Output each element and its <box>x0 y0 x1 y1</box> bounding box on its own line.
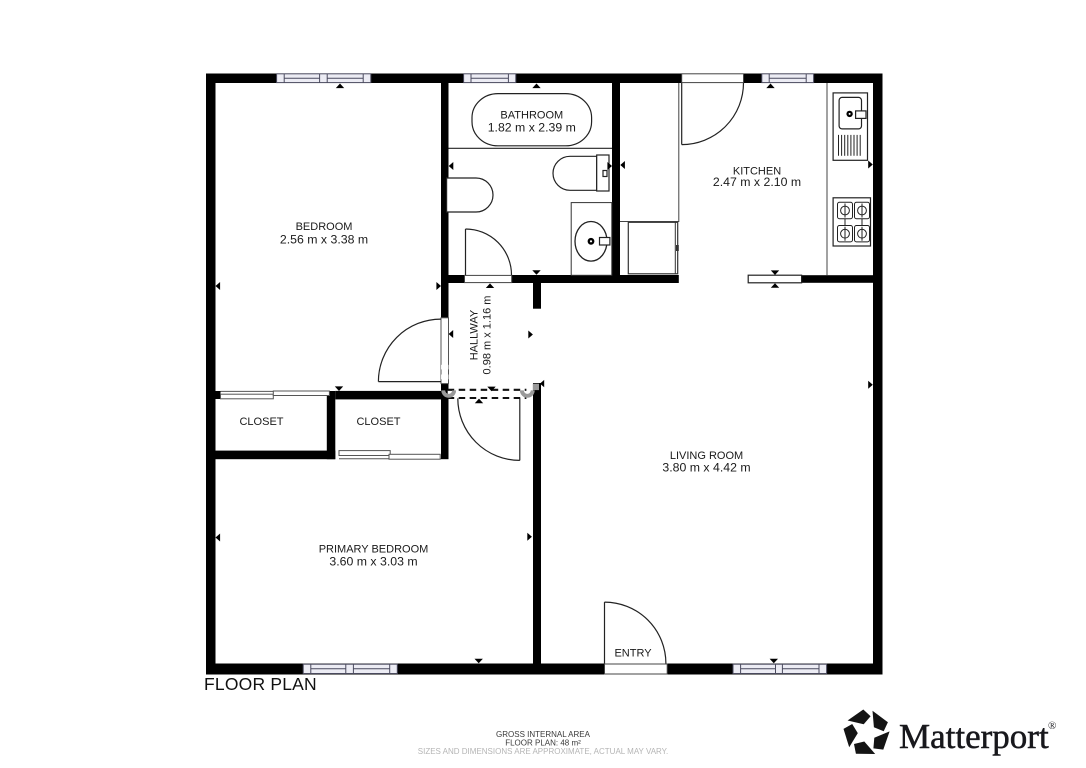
svg-text:BEDROOM: BEDROOM <box>296 221 353 233</box>
svg-text:HALLWAY: HALLWAY <box>469 309 481 360</box>
svg-text:FLOOR PLAN: FLOOR PLAN <box>204 674 317 694</box>
svg-text:2.47 m x 2.10 m: 2.47 m x 2.10 m <box>713 175 801 189</box>
svg-text:3.60 m x 3.03 m: 3.60 m x 3.03 m <box>329 555 417 569</box>
svg-text:CLOSET: CLOSET <box>356 416 400 428</box>
svg-text:CLOSET: CLOSET <box>239 416 283 428</box>
svg-text:®: ® <box>1048 720 1056 732</box>
svg-text:SIZES AND DIMENSIONS ARE APPRO: SIZES AND DIMENSIONS ARE APPROXIMATE, AC… <box>418 747 668 756</box>
svg-text:1.82 m x 2.39 m: 1.82 m x 2.39 m <box>488 121 576 135</box>
svg-text:0.98 m x 1.16 m: 0.98 m x 1.16 m <box>482 296 494 375</box>
svg-text:2.56 m x 3.38 m: 2.56 m x 3.38 m <box>280 233 368 247</box>
svg-text:BATHROOM: BATHROOM <box>500 109 563 121</box>
svg-text:Matterport: Matterport <box>899 717 1049 756</box>
svg-text:3.80 m x 4.42 m: 3.80 m x 4.42 m <box>662 461 750 475</box>
svg-text:ENTRY: ENTRY <box>614 648 652 660</box>
